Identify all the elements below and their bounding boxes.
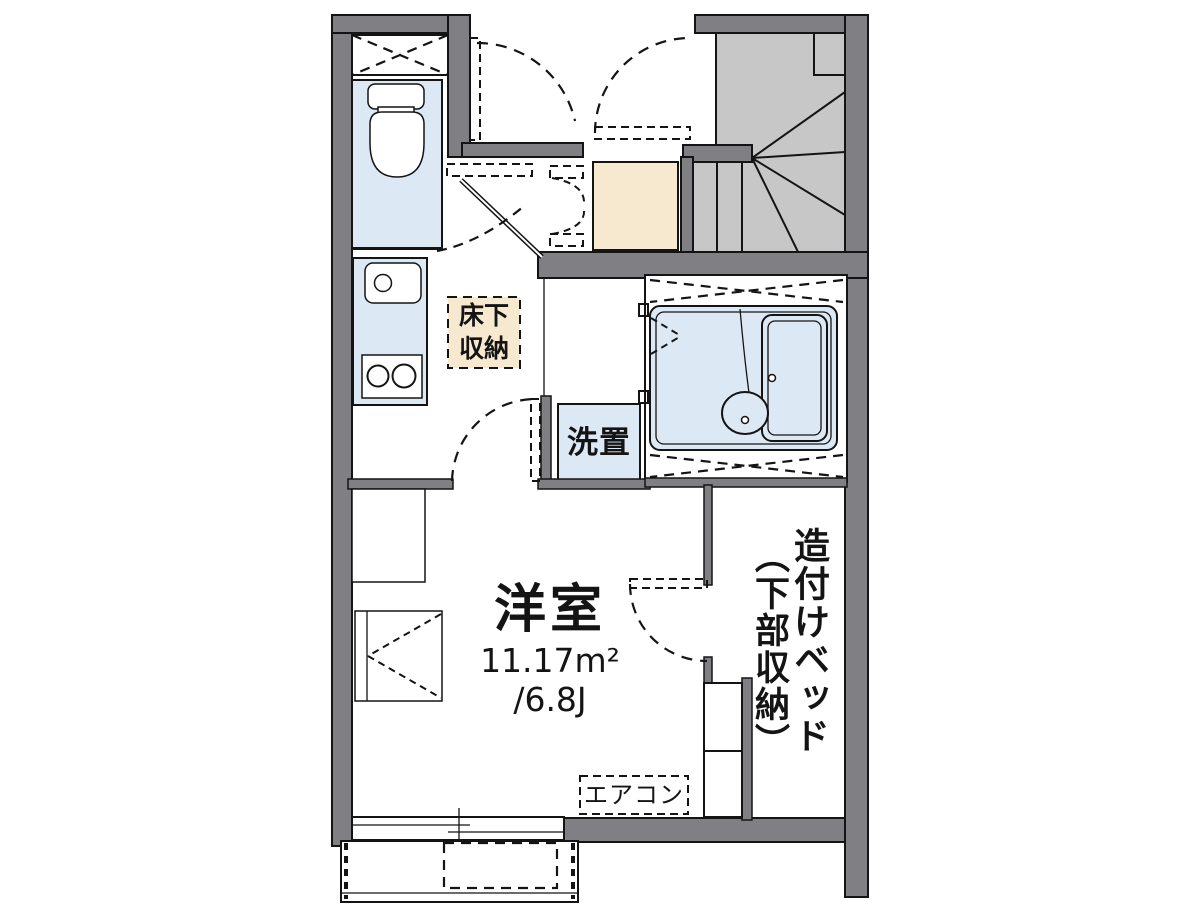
- entry-door-swing-right: [595, 38, 690, 133]
- entry-door-leaf-left: [470, 38, 480, 140]
- entrance-tile: [593, 162, 678, 250]
- toilet-tank: [368, 84, 424, 109]
- bathroom: [639, 275, 847, 482]
- entry-door-swing-left: [477, 43, 575, 121]
- wall-top-right: [695, 15, 868, 33]
- bed-area-door-leaf: [630, 579, 707, 588]
- wash-basin: [722, 392, 768, 434]
- kitchen-sink: [365, 263, 421, 303]
- wall-bottom: [564, 818, 845, 842]
- wall-entry-left: [462, 143, 583, 157]
- wall-bed-north: [645, 478, 847, 487]
- laundry-label: 洗置: [558, 404, 640, 483]
- bifold-door-swing: [552, 209, 584, 234]
- wall-entrance-right: [681, 157, 693, 260]
- bathtub-handle-icon: [769, 375, 776, 382]
- floor-plan-canvas: 洋室 11.17m² /6.8J 床下 収納 洗置 エアコン 造付けベッド （下…: [0, 0, 1200, 912]
- bifold-door-stub: [550, 166, 583, 178]
- room-door-leaf: [531, 399, 540, 481]
- toilet-door-leaf-inner: [461, 180, 542, 257]
- kitchen: [353, 258, 427, 405]
- bed-area-door-swing: [630, 584, 707, 661]
- wall-room-north-left: [348, 479, 453, 489]
- wall-right: [845, 15, 868, 897]
- wall-toilet-porch: [448, 15, 470, 157]
- room-door-swing: [452, 399, 536, 481]
- closet: [352, 489, 425, 582]
- wall-room-bed-upper: [704, 485, 712, 585]
- bifold-door-stub: [550, 234, 583, 246]
- basin-drain-icon: [742, 417, 749, 424]
- room-area-sqm-label: 11.17m²: [460, 643, 640, 679]
- toilet-door-track: [447, 164, 532, 176]
- sink-drain-icon: [375, 275, 392, 292]
- room-area-tatami-label: /6.8J: [460, 682, 640, 718]
- toilet-icon: [368, 84, 424, 177]
- toilet-room: [351, 35, 448, 249]
- underfloor-storage-label: 床下 収納: [448, 297, 520, 368]
- room-name-label: 洋室: [470, 580, 630, 640]
- window-and-balcony: [341, 808, 578, 902]
- stair-landing-notch: [814, 33, 845, 75]
- wall-left: [332, 15, 352, 846]
- sliding-window: [352, 817, 564, 840]
- bed-lower-storage-label: （下部収納）: [744, 538, 795, 768]
- wall-laundry-left: [541, 396, 551, 483]
- aircon-label: エアコン: [580, 776, 688, 814]
- bifold-door-swing: [552, 178, 584, 205]
- toilet-bowl: [370, 112, 424, 177]
- entry-door-leaf-right: [595, 127, 690, 139]
